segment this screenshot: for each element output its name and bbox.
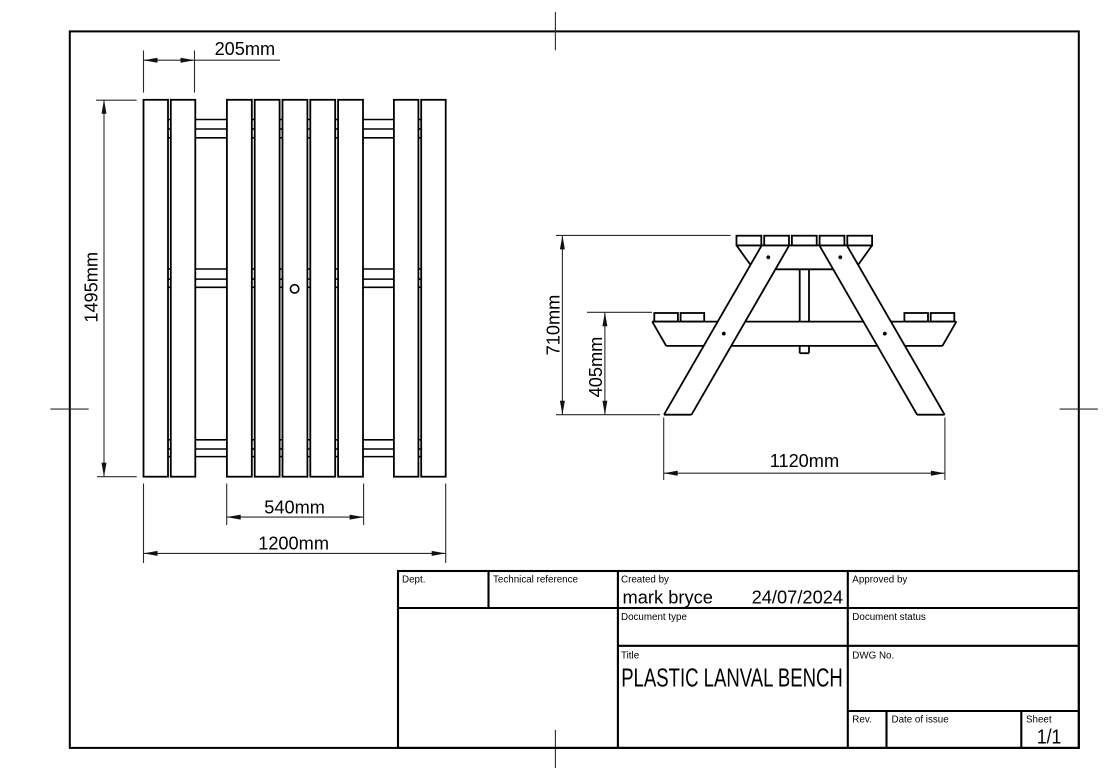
svg-text:Sheet: Sheet (1026, 714, 1052, 725)
svg-text:PLASTIC LANVAL BENCH: PLASTIC LANVAL BENCH (621, 665, 843, 693)
svg-text:710mm: 710mm (544, 295, 564, 356)
svg-text:Title: Title (621, 650, 640, 661)
svg-text:DWG No.: DWG No. (852, 650, 894, 661)
svg-text:1200mm: 1200mm (258, 534, 329, 554)
svg-text:mark bryce: mark bryce (623, 586, 713, 607)
svg-text:Approved by: Approved by (852, 574, 907, 585)
svg-text:Date of issue: Date of issue (892, 714, 950, 725)
svg-text:1/1: 1/1 (1037, 727, 1062, 749)
svg-text:1120mm: 1120mm (770, 451, 839, 471)
svg-text:540mm: 540mm (264, 498, 325, 518)
svg-text:Dept.: Dept. (402, 574, 425, 585)
svg-text:Technical reference: Technical reference (493, 574, 579, 585)
svg-text:24/07/2024: 24/07/2024 (752, 586, 844, 607)
svg-text:Created by: Created by (621, 574, 669, 585)
svg-text:Document status: Document status (852, 612, 926, 623)
svg-text:205mm: 205mm (215, 39, 276, 59)
svg-text:Rev.: Rev. (852, 714, 871, 725)
svg-text:Document type: Document type (621, 612, 687, 623)
svg-text:1495mm: 1495mm (82, 252, 102, 323)
svg-text:405mm: 405mm (586, 337, 606, 398)
